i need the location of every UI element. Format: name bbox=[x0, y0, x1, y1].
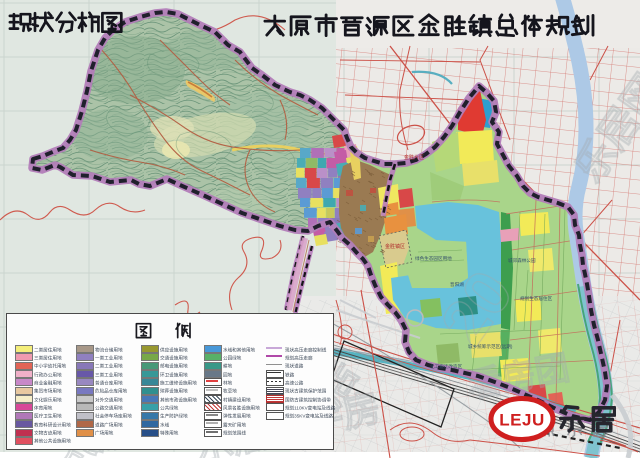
svg-text:绿色生态园区用地: 绿色生态园区用地 bbox=[415, 255, 452, 262]
svg-text:城郊森林公园: 城郊森林公园 bbox=[508, 257, 536, 264]
svg-text:城乡统筹示范区(远期): 城乡统筹示范区(远期) bbox=[468, 343, 513, 350]
svg-text:晋阳湖: 晋阳湖 bbox=[450, 281, 464, 288]
svg-text:LEJU: LEJU bbox=[499, 411, 544, 430]
svg-text:金胜片区: 金胜片区 bbox=[404, 154, 424, 161]
svg-text:化工搬迁改造区: 化工搬迁改造区 bbox=[430, 363, 463, 370]
svg-text:规划生态居住区: 规划生态居住区 bbox=[520, 295, 553, 302]
svg-text:金胜镇区: 金胜镇区 bbox=[385, 243, 405, 250]
